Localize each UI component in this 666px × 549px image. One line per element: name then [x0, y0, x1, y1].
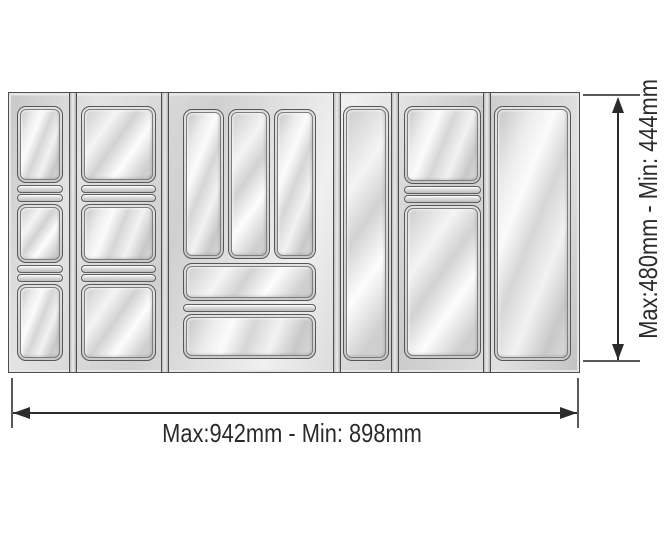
cutlery-tray-insert	[8, 92, 580, 373]
divider-ridge	[183, 304, 316, 312]
compartment-m1-bottom	[17, 284, 63, 361]
extension-line-top	[583, 94, 640, 96]
divider-ridge	[81, 194, 156, 202]
cutlery-slot-middle	[228, 109, 270, 259]
compartment-m2-bottom	[81, 284, 156, 361]
height-dimension-line	[617, 99, 619, 360]
compartment-m1-middle	[17, 204, 63, 263]
width-dimension-line	[13, 412, 577, 414]
diagram-canvas: Max:480mm - Min: 444mm Max:942mm - Min: …	[0, 0, 666, 549]
compartment-m2-top	[81, 106, 156, 183]
width-dimension-label: Max:942mm - Min: 898mm	[124, 418, 460, 449]
compartment-m2-middle	[81, 204, 156, 263]
module-joint	[483, 93, 491, 372]
compartment-m3-shallow	[183, 263, 316, 301]
divider-ridge	[404, 195, 481, 203]
cutlery-slot-left	[183, 109, 224, 259]
divider-ridge	[17, 185, 63, 193]
compartment-m4-slot	[343, 106, 389, 361]
extension-line-right	[577, 378, 579, 428]
divider-ridge	[17, 265, 63, 273]
module-joint	[333, 93, 341, 372]
module-joint	[161, 93, 169, 372]
divider-ridge	[81, 185, 156, 193]
extension-line-left	[11, 378, 13, 428]
compartment-m3-bottom	[183, 314, 316, 359]
arrow-left-icon	[13, 407, 30, 419]
divider-ridge	[17, 194, 63, 202]
compartment-m5-top	[404, 106, 481, 184]
arrow-right-icon	[560, 407, 577, 419]
divider-ridge	[404, 186, 481, 194]
compartment-m5-bottom	[404, 205, 481, 359]
arrow-up-icon	[612, 97, 624, 113]
extension-line-bottom	[583, 360, 640, 362]
compartment-m1-top	[17, 106, 63, 183]
module-joint	[391, 93, 399, 372]
divider-ridge	[81, 265, 156, 273]
height-dimension-label: Max:480mm - Min: 444mm	[632, 137, 664, 339]
module-joint	[69, 93, 77, 372]
divider-ridge	[17, 274, 63, 282]
cutlery-slot-right	[274, 109, 316, 259]
divider-ridge	[81, 274, 156, 282]
arrow-down-icon	[612, 344, 624, 360]
compartment-m6	[494, 106, 571, 361]
